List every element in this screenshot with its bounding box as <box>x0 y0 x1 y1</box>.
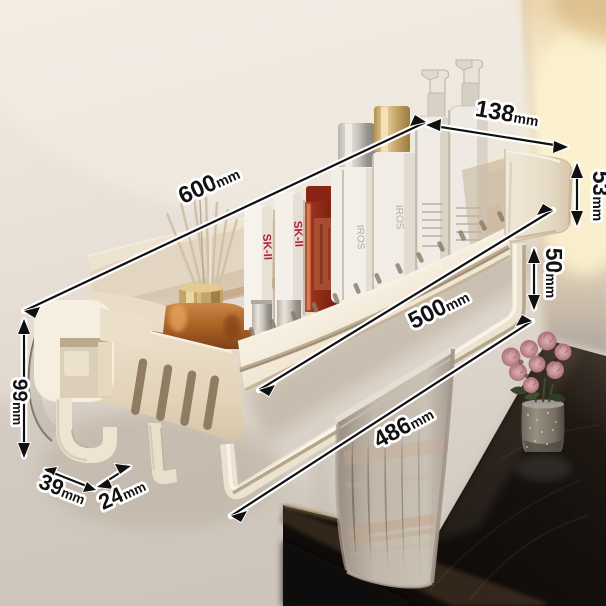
svg-text:53mm: 53mm <box>588 171 606 222</box>
svg-text:SK-II: SK-II <box>260 234 273 261</box>
svg-text:IROS: IROS <box>393 205 405 230</box>
svg-text:IROS: IROS <box>354 225 366 250</box>
svg-text:SK-II: SK-II <box>291 221 304 248</box>
